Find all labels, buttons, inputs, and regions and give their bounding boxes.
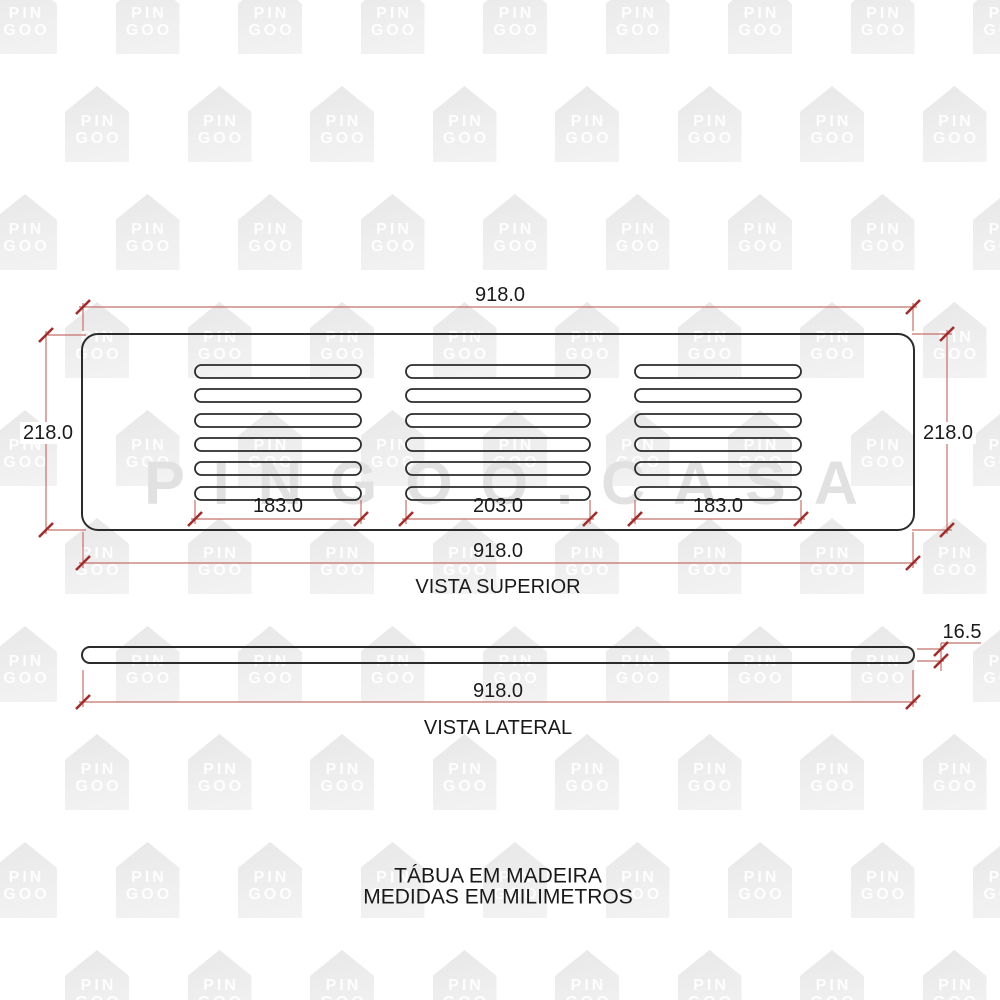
vent-slot (406, 414, 590, 427)
dim-slot-group-2: 203.0 (473, 496, 523, 516)
vent-slot (406, 389, 590, 402)
vent-slot (195, 462, 361, 475)
vent-slot (635, 414, 801, 427)
dim-width-bottom: 918.0 (473, 541, 523, 561)
side-view (76, 642, 981, 709)
vent-slot (635, 365, 801, 378)
vent-slot (195, 389, 361, 402)
vent-slots (195, 365, 801, 500)
side-view-title: VISTA LATERAL (424, 718, 572, 738)
vent-slot (195, 365, 361, 378)
vent-slot (635, 389, 801, 402)
vent-slot (635, 462, 801, 475)
dim-height-left: 218.0 (20, 422, 76, 444)
footer-line-2: MEDIDAS EM MILIMETROS (363, 887, 633, 908)
dim-slot-group-3: 183.0 (693, 496, 743, 516)
vent-slot (635, 438, 801, 451)
vent-slot (195, 438, 361, 451)
dim-slot-group-1: 183.0 (253, 496, 303, 516)
dim-thickness: 16.5 (943, 622, 982, 642)
dim-height-right: 218.0 (920, 422, 976, 444)
dim-width-top: 918.0 (475, 285, 525, 305)
vent-slot (406, 462, 590, 475)
vent-slot (195, 414, 361, 427)
top-view-title: VISTA SUPERIOR (415, 577, 580, 597)
vent-slot (406, 438, 590, 451)
top-view (39, 300, 954, 570)
side-view-outline (82, 647, 914, 663)
footer-line-1: TÁBUA EM MADEIRA (394, 866, 602, 887)
vent-slot (406, 365, 590, 378)
dim-side-width: 918.0 (473, 681, 523, 701)
